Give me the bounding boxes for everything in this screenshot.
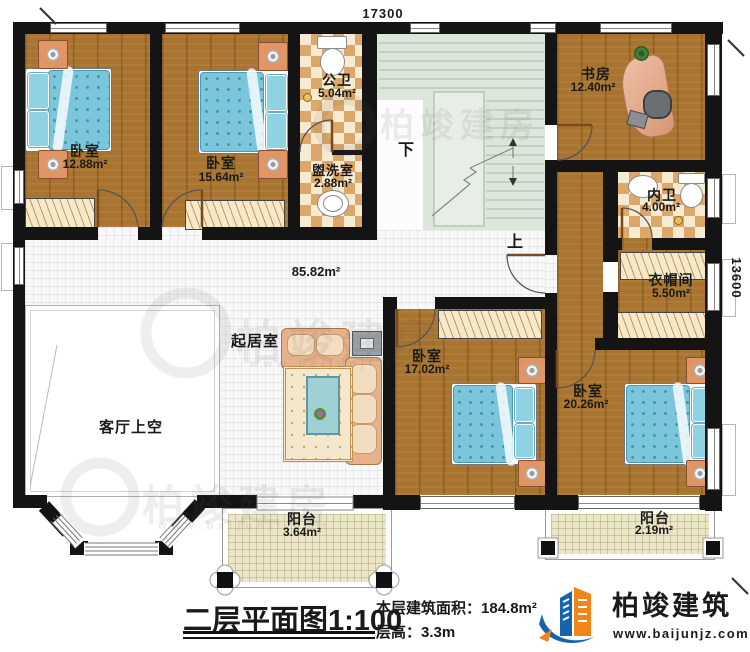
room-area-balcony-rear: 2.19m² — [635, 523, 673, 537]
sofa-cushion — [350, 394, 377, 424]
sofa-cushion — [350, 424, 377, 454]
door-gap-floor-4 — [300, 150, 332, 157]
wall — [332, 150, 362, 155]
room-label-void: 客厅上空 — [99, 416, 163, 437]
wall — [700, 495, 722, 510]
room-area-washroom: 2.88m² — [314, 176, 352, 190]
wall — [138, 227, 162, 240]
nightstand — [518, 460, 546, 487]
floor-area-label: 本层建筑面积： — [376, 600, 481, 617]
stairwell-floor — [377, 34, 545, 100]
window — [707, 44, 720, 96]
window — [165, 23, 240, 33]
room-area-ensuite-bath: 4.00m² — [642, 200, 680, 214]
wall — [362, 34, 377, 234]
window-sill — [722, 424, 736, 496]
nightstand — [38, 40, 68, 69]
window — [707, 428, 720, 490]
nightstand — [258, 42, 288, 71]
door-gap-floor-5 — [622, 238, 652, 250]
window-sill — [722, 174, 736, 224]
hallway-floor — [557, 172, 603, 350]
floor-height-line: 层高：3.3m — [376, 621, 455, 642]
company-logo-icon — [536, 578, 610, 646]
wall — [13, 227, 98, 240]
room-area-bedroom-d: 20.26m² — [564, 397, 609, 411]
dimension-top: 17300 — [348, 6, 418, 21]
room-area-cloakroom: 5.50m² — [652, 286, 690, 300]
room-area-public-bath: 5.04m² — [318, 86, 356, 100]
wall — [545, 34, 557, 125]
floor-height-value: 3.3m — [421, 624, 455, 641]
window — [50, 23, 107, 33]
room-area-living: 85.82m² — [292, 264, 340, 279]
floor-height-label: 层高： — [376, 624, 421, 641]
wall — [557, 160, 722, 172]
wall — [288, 34, 300, 234]
company-name: 柏竣建筑 — [612, 584, 732, 623]
window — [410, 23, 440, 33]
pillow — [266, 113, 287, 149]
stairs-down-label: 下 — [398, 136, 414, 160]
room-area-balcony-front: 3.64m² — [283, 525, 321, 539]
living-void-outline — [30, 310, 215, 492]
wall — [202, 227, 377, 240]
wall — [353, 495, 395, 508]
window — [14, 247, 24, 285]
title-underline — [183, 631, 375, 634]
wall — [545, 293, 557, 495]
room-area-bedroom-c: 17.02m² — [405, 362, 450, 376]
window — [530, 23, 556, 33]
wall — [603, 238, 622, 250]
wall — [435, 297, 545, 309]
wardrobe — [608, 312, 707, 340]
wall — [603, 172, 618, 238]
window — [600, 23, 672, 33]
title-underline-2 — [183, 637, 375, 639]
pillow — [515, 424, 534, 458]
door-gap-floor-3 — [545, 255, 557, 293]
pillow — [28, 73, 49, 109]
plant — [634, 46, 649, 61]
pillow — [266, 75, 287, 111]
wall — [150, 34, 162, 234]
room-label-living: 起居室 — [231, 330, 279, 351]
living-void-region — [25, 305, 220, 497]
wall — [652, 238, 722, 250]
pillow — [28, 111, 49, 147]
nightstand — [258, 150, 288, 179]
balcony-rear-region — [545, 508, 715, 560]
nightstand — [518, 357, 546, 384]
wall — [595, 338, 722, 350]
window — [707, 178, 720, 218]
wall — [603, 250, 618, 262]
dimension-right: 13600 — [729, 243, 744, 313]
watermark-url: www.baijunjf.com — [250, 358, 423, 370]
wardrobe — [438, 310, 542, 339]
window — [707, 263, 720, 311]
room-area-bedroom-a: 12.88m² — [63, 157, 108, 171]
balcony-rear-tiles — [551, 514, 709, 554]
company-url: www.baijunjz.com — [613, 626, 749, 641]
window — [14, 170, 24, 204]
floor-plan-page: 柏竣建房 www.baijunjf.com 柏竣建房 柏竣建房 www.baij… — [0, 0, 750, 652]
room-area-study: 12.40m² — [571, 80, 616, 94]
toilet-bowl — [680, 183, 703, 208]
wall — [545, 160, 557, 255]
room-area-bedroom-b: 15.64m² — [199, 170, 244, 184]
wall — [13, 495, 47, 508]
wall — [515, 495, 578, 510]
wall — [545, 338, 557, 350]
sink-basin — [323, 195, 343, 212]
wardrobe — [185, 200, 285, 230]
door-knob — [674, 216, 683, 225]
wardrobe — [25, 198, 95, 229]
door-gap-floor-1 — [98, 227, 138, 240]
floor-area-value: 184.8m² — [481, 600, 537, 617]
door-knob — [303, 93, 312, 102]
floor-area-line: 本层建筑面积：184.8m² — [376, 597, 537, 618]
window — [420, 496, 515, 509]
stairs-up-label: 上 — [507, 228, 523, 252]
flower-decor — [312, 406, 328, 422]
pillow — [515, 388, 534, 422]
window — [578, 496, 700, 509]
